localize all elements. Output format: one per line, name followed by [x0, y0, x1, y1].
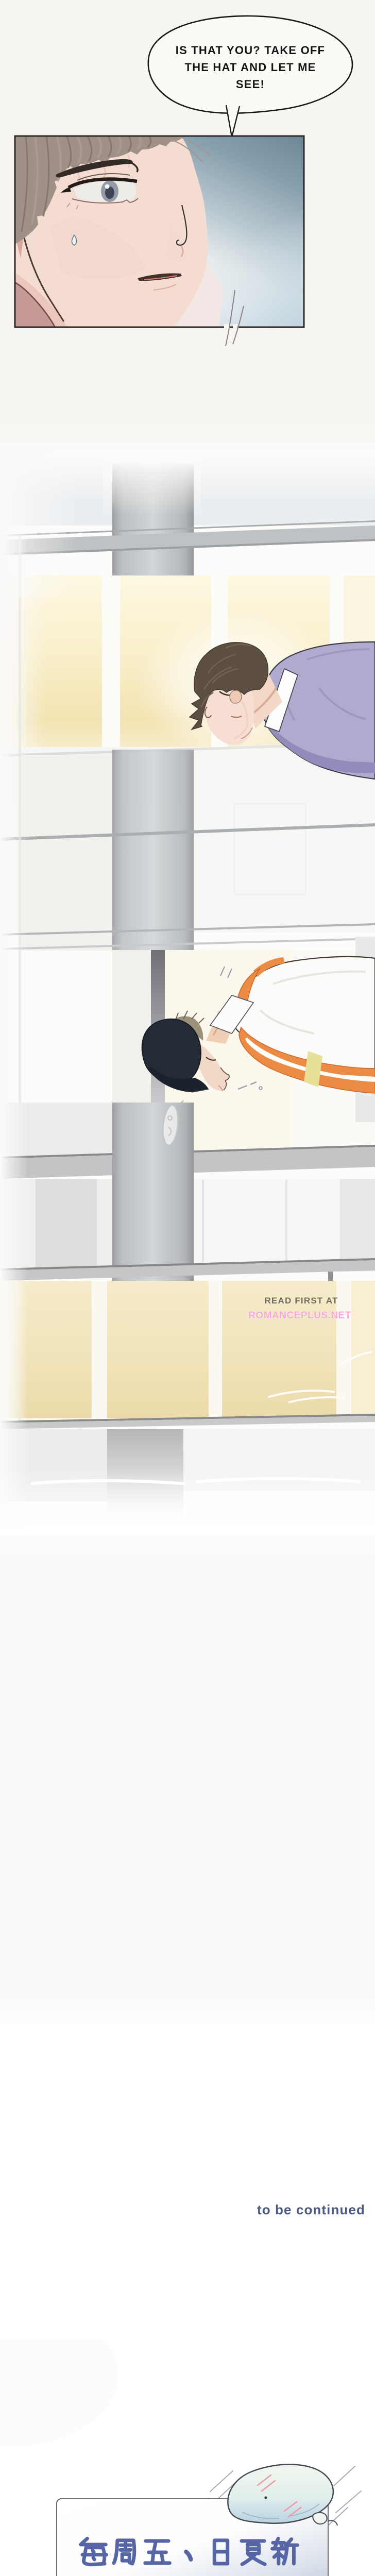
svg-text:READ FIRST AT: READ FIRST AT	[264, 1296, 338, 1306]
svg-text:SEE!: SEE!	[236, 78, 265, 91]
svg-text:IS THAT YOU? TAKE OFF: IS THAT YOU? TAKE OFF	[176, 44, 325, 57]
svg-text:THE HAT AND LET ME: THE HAT AND LET ME	[184, 61, 316, 74]
svg-text:ROMANCEPLUS.NET: ROMANCEPLUS.NET	[248, 1310, 351, 1321]
